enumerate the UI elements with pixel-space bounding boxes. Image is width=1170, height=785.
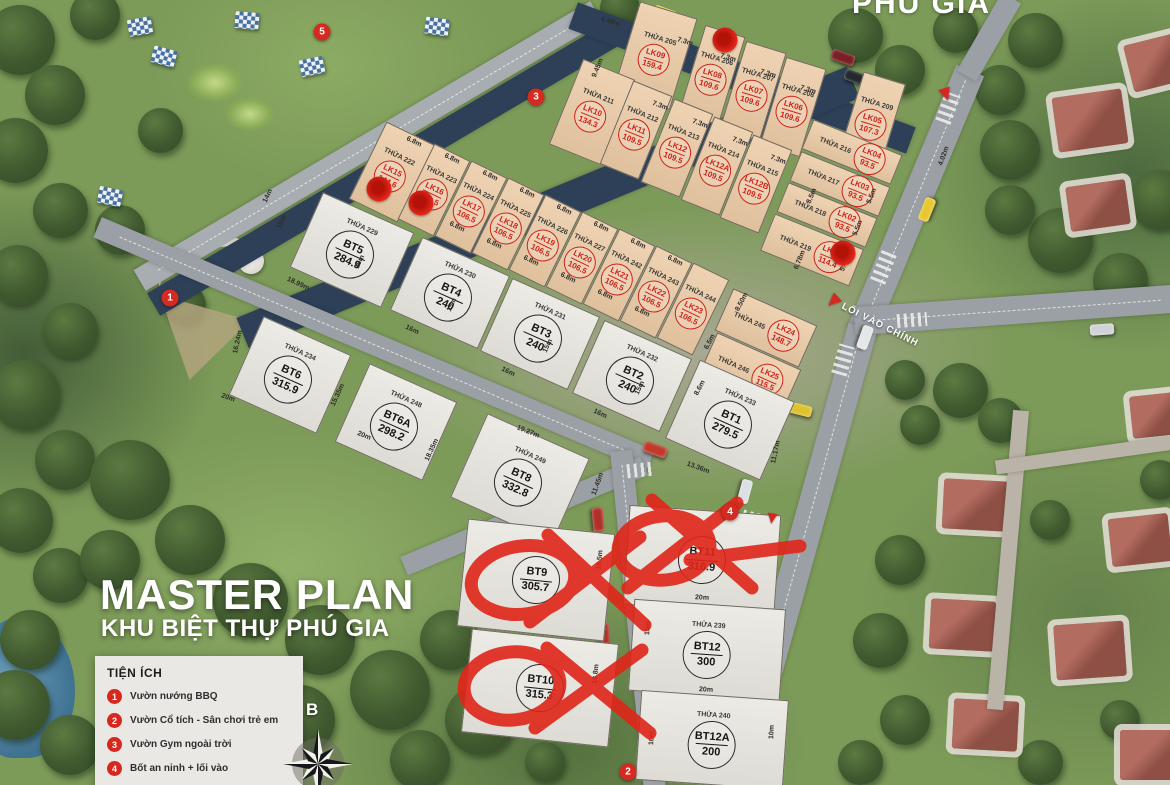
red-dot <box>409 191 434 216</box>
legend-item-4: 4Bốt an ninh + lối vào <box>107 761 291 776</box>
red-dot <box>713 28 738 53</box>
page-title: MASTER PLAN <box>100 574 414 616</box>
map-marker-3: 3 <box>528 89 545 106</box>
site-watermark: PHU GIA <box>852 0 991 21</box>
legend-panel: TIỆN ÍCH 1Vườn nướng BBQ2Vườn Cổ tích - … <box>95 656 303 785</box>
map-marker-5: 5 <box>314 24 331 41</box>
legend-item-number: 1 <box>107 689 122 704</box>
map-marker-1: 1 <box>162 290 179 307</box>
map-marker-4: 4 <box>722 504 739 521</box>
legend-item-label: Bốt an ninh + lối vào <box>130 763 228 774</box>
red-dot <box>367 177 392 202</box>
red-dot <box>831 241 856 266</box>
red-pin-icon <box>767 513 778 525</box>
legend-item-label: Vườn Cổ tích - Sân chơi trẻ em <box>130 715 278 726</box>
legend-item-1: 1Vườn nướng BBQ <box>107 689 291 704</box>
legend-item-number: 2 <box>107 713 122 728</box>
master-plan-map: THỬA 205LK09159.4THỬA 206LK08109.6THỬA 2… <box>0 0 1170 785</box>
compass-rose <box>281 727 355 785</box>
legend-item-number: 4 <box>107 761 122 776</box>
north-label: B <box>306 700 318 720</box>
legend-title: TIỆN ÍCH <box>107 666 291 680</box>
page-subtitle: KHU BIỆT THỰ PHÚ GIA <box>101 616 390 642</box>
map-marker-2: 2 <box>620 764 637 781</box>
legend-item-3: 3Vườn Gym ngoài trời <box>107 737 291 752</box>
legend-item-number: 3 <box>107 737 122 752</box>
legend-item-2: 2Vườn Cổ tích - Sân chơi trẻ em <box>107 713 291 728</box>
legend-items: 1Vườn nướng BBQ2Vườn Cổ tích - Sân chơi … <box>107 689 291 776</box>
legend-item-label: Vườn Gym ngoài trời <box>130 739 231 750</box>
legend-item-label: Vườn nướng BBQ <box>130 691 218 702</box>
